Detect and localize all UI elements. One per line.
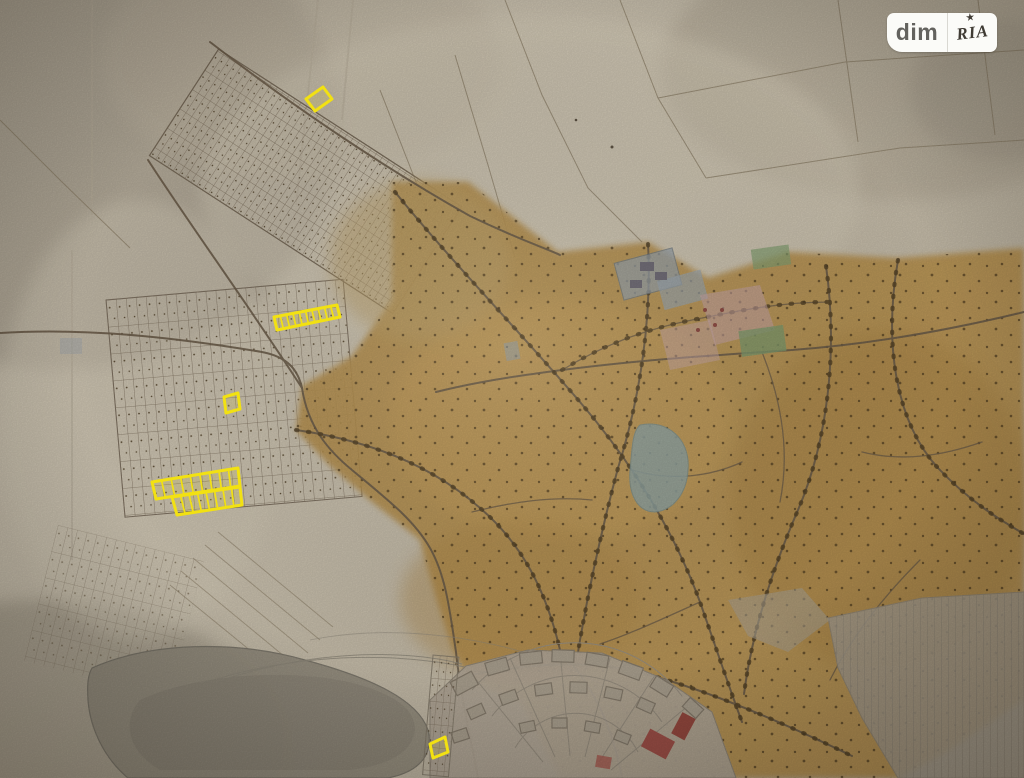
watermark-dim-label: dim [887,13,948,52]
cadastral-map [0,0,1024,778]
map-photo: dim ★ RIA [0,0,1024,778]
watermark-ria-label: ★ RIA [946,10,999,55]
vignette-overlay [0,0,1024,778]
dimria-watermark: dim ★ RIA [887,13,997,52]
watermark-ria-text: RIA [955,21,989,45]
star-icon: ★ [966,13,976,23]
highlighted-plot-single-mid [224,393,240,413]
